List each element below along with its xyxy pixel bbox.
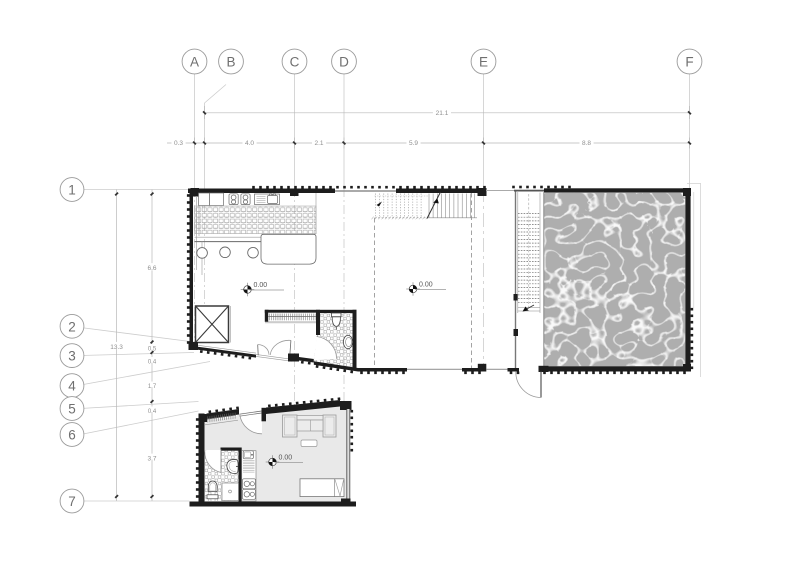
svg-text:0.3: 0.3	[174, 140, 183, 147]
svg-text:C: C	[290, 55, 300, 70]
svg-text:13.3: 13.3	[110, 344, 123, 351]
svg-text:D: D	[339, 55, 349, 70]
svg-text:0.00: 0.00	[254, 282, 268, 289]
svg-text:E: E	[479, 55, 488, 70]
svg-text:2.1: 2.1	[314, 140, 323, 147]
svg-text:6: 6	[68, 428, 76, 443]
svg-text:0.4: 0.4	[148, 409, 157, 415]
svg-text:1.7: 1.7	[148, 384, 157, 390]
svg-text:1: 1	[68, 183, 76, 198]
svg-text:3: 3	[68, 349, 76, 364]
svg-text:4: 4	[68, 379, 76, 394]
svg-text:21.1: 21.1	[436, 110, 449, 117]
svg-text:2: 2	[68, 319, 76, 334]
svg-text:5.9: 5.9	[409, 140, 418, 147]
svg-text:4.0: 4.0	[245, 140, 254, 147]
svg-text:3.7: 3.7	[147, 456, 156, 463]
svg-text:A: A	[190, 55, 199, 70]
svg-text:F: F	[685, 55, 693, 70]
svg-text:B: B	[226, 55, 235, 70]
svg-text:5: 5	[68, 402, 76, 417]
svg-text:8.8: 8.8	[582, 140, 591, 147]
svg-text:0.00: 0.00	[279, 455, 293, 462]
svg-text:6.6: 6.6	[147, 265, 156, 272]
svg-text:0.00: 0.00	[419, 282, 433, 289]
svg-text:7: 7	[68, 494, 76, 509]
svg-text:0.4: 0.4	[148, 359, 157, 365]
svg-text:0.5: 0.5	[148, 346, 157, 352]
